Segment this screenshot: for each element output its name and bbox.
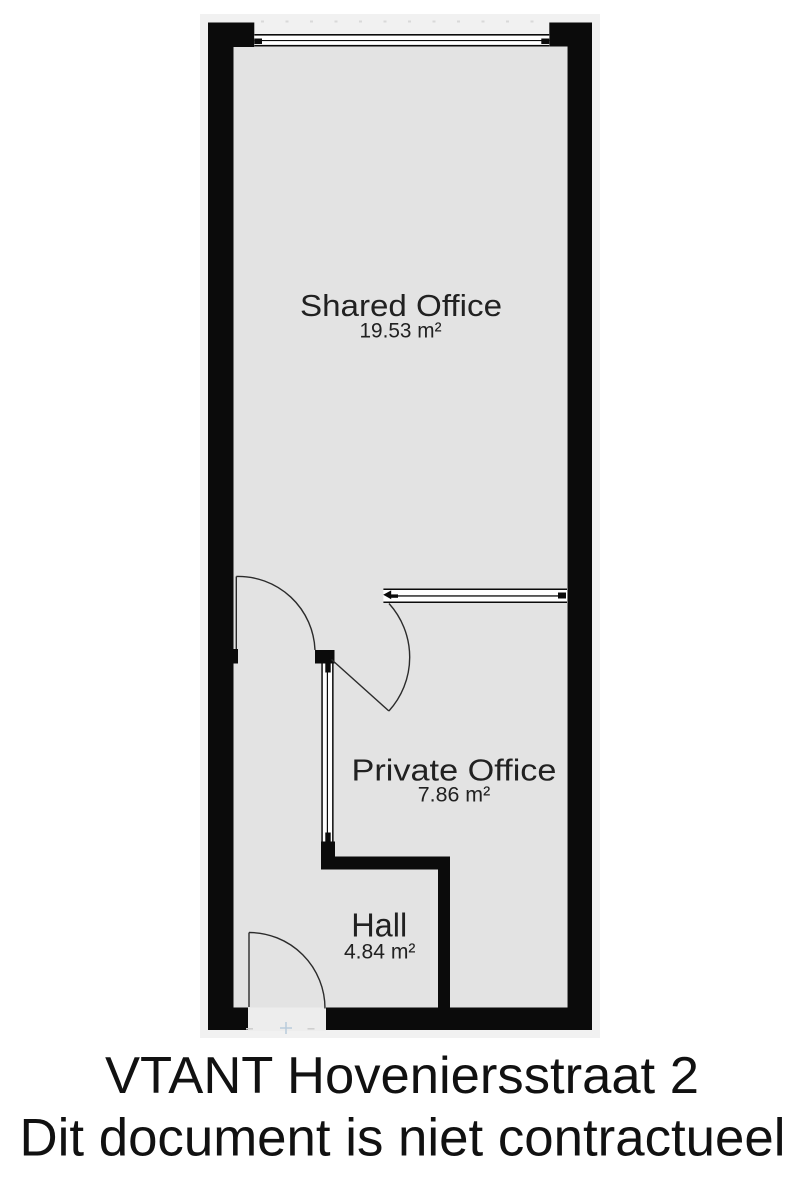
svg-text:4.84 m²: 4.84 m² [344, 940, 416, 964]
svg-text:VTANT Hoveniersstraat 2: VTANT Hoveniersstraat 2 [105, 1047, 699, 1105]
svg-text:Dit document is niet contractu: Dit document is niet contractueel [20, 1109, 786, 1168]
svg-text:19.53 m²: 19.53 m² [360, 319, 442, 343]
svg-text:7.86 m²: 7.86 m² [418, 783, 491, 807]
svg-text:Hall: Hall [351, 907, 407, 944]
